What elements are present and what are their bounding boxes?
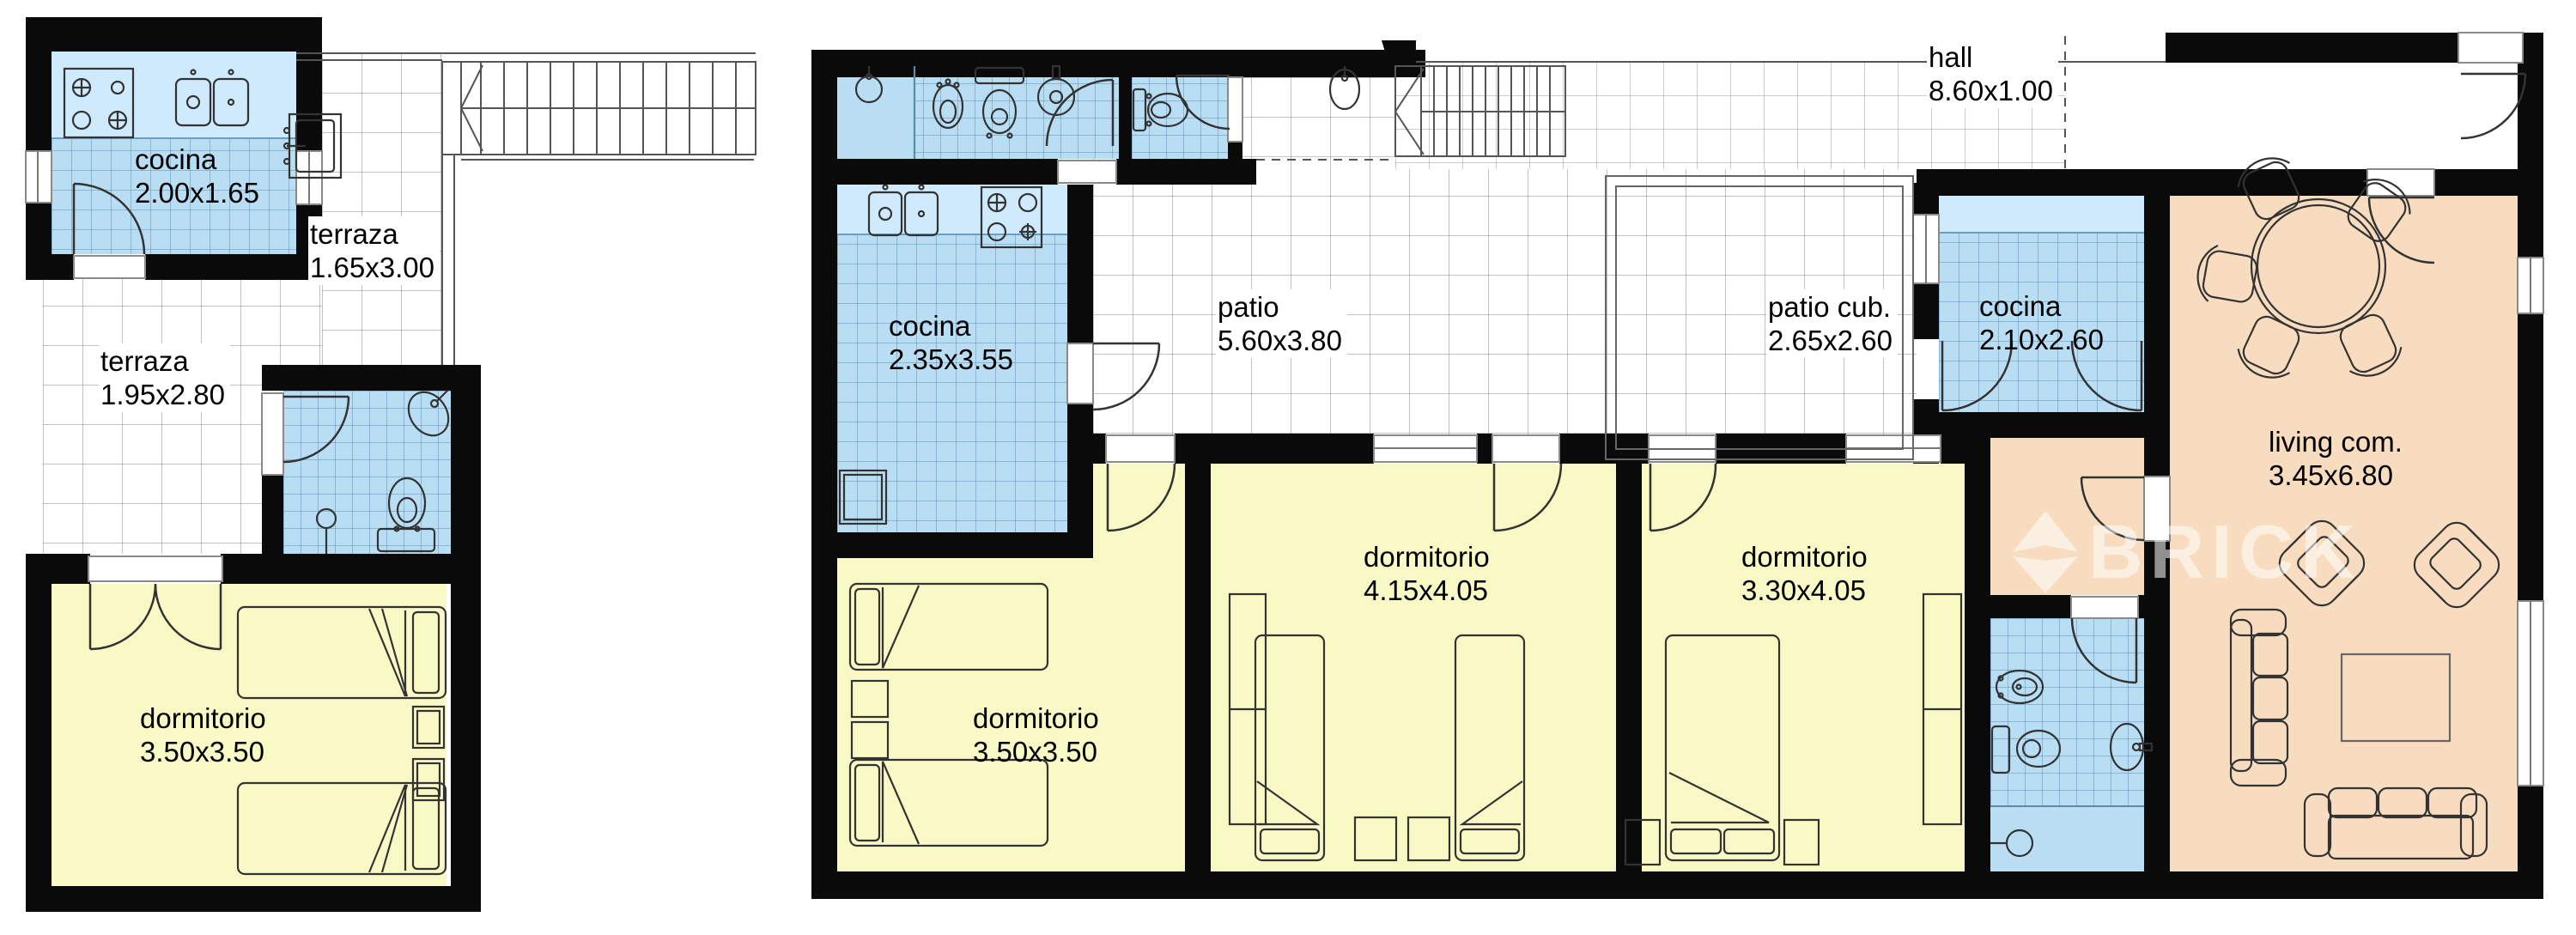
label-patio-cub: patio cub. 2.65x2.60 xyxy=(1766,289,1898,358)
label-dormitorio-330: dormitorio 3.30x4.05 xyxy=(1741,540,1868,607)
bano-baja-floor xyxy=(1990,618,2144,807)
cocina-235-counter xyxy=(837,185,1067,235)
label-dormitorio-350: dormitorio 3.50x3.50 xyxy=(973,701,1099,768)
label-hall: hall 8.60x1.00 xyxy=(1927,39,2058,108)
cocina-alta-counter xyxy=(52,52,296,139)
floor-plan-canvas: BRICK cocina 2.00x1.65 terraza 1.65x3.00… xyxy=(0,0,2576,935)
label-terraza-2: terraza 1.95x2.80 xyxy=(99,343,230,412)
label-dormitorio-alta: dormitorio 3.50x3.50 xyxy=(140,701,266,768)
toilette-floor xyxy=(1132,66,1228,159)
cocina-210-counter xyxy=(1939,183,2144,234)
label-dormitorio-415: dormitorio 4.15x4.05 xyxy=(1364,540,1490,607)
dormitorio-330-floor xyxy=(1642,464,1965,871)
label-terraza-1: terraza 1.65x3.00 xyxy=(308,216,440,285)
label-patio: patio 5.60x3.80 xyxy=(1216,289,1347,358)
label-living: living com. 3.45x6.80 xyxy=(2269,425,2403,492)
ducha-zone xyxy=(837,66,914,159)
label-cocina-210: cocina 2.10x2.60 xyxy=(1979,289,2104,356)
bano-alta-floor xyxy=(283,391,451,554)
living-floor xyxy=(2170,183,2518,871)
label-cocina-alta: cocina 2.00x1.65 xyxy=(135,143,259,209)
door-entrance xyxy=(2461,74,2525,138)
pasillo-floor xyxy=(1990,436,2144,595)
label-cocina-235: cocina 2.35x3.55 xyxy=(889,309,1013,376)
dormitorio-415-floor xyxy=(1211,464,1616,871)
bano-baja-ducha xyxy=(1990,805,2144,873)
